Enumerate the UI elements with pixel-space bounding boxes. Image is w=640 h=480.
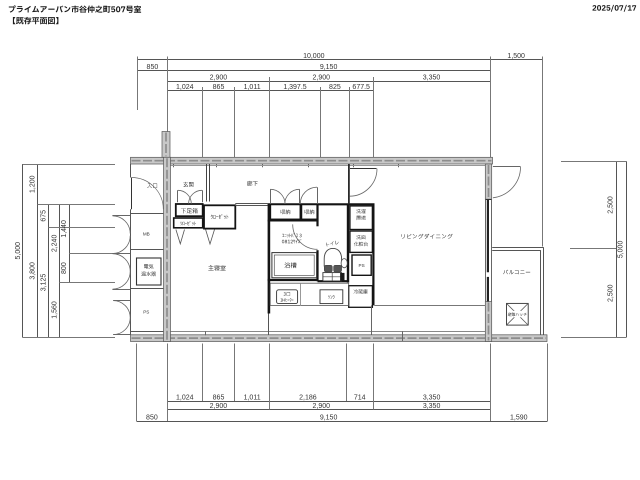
svg-text:9,150: 9,150 bbox=[320, 415, 338, 422]
svg-text:9,150: 9,150 bbox=[320, 64, 338, 71]
svg-text:3,800: 3,800 bbox=[30, 262, 37, 280]
svg-text:2,500: 2,500 bbox=[608, 284, 615, 302]
svg-text:1,500: 1,500 bbox=[507, 53, 525, 60]
svg-text:1,590: 1,590 bbox=[510, 415, 528, 422]
svg-text:PS: PS bbox=[143, 309, 149, 314]
svg-text:675: 675 bbox=[41, 210, 48, 222]
svg-text:1,397.5: 1,397.5 bbox=[283, 84, 306, 91]
svg-text:1,011: 1,011 bbox=[244, 395, 261, 402]
svg-text:1,011: 1,011 bbox=[244, 84, 261, 91]
svg-text:MB: MB bbox=[143, 232, 150, 237]
svg-text:714: 714 bbox=[354, 395, 366, 402]
svg-text:3,350: 3,350 bbox=[423, 74, 441, 81]
svg-text:2,900: 2,900 bbox=[313, 74, 331, 81]
svg-text:1,560: 1,560 bbox=[51, 301, 58, 319]
svg-text:3,350: 3,350 bbox=[423, 403, 441, 410]
svg-text:677.5: 677.5 bbox=[352, 84, 370, 91]
svg-text:5,000: 5,000 bbox=[15, 242, 22, 260]
svg-text:2,240: 2,240 bbox=[51, 235, 58, 253]
svg-text:PS: PS bbox=[359, 263, 365, 268]
svg-text:2,900: 2,900 bbox=[210, 403, 228, 410]
svg-text:5,000: 5,000 bbox=[618, 241, 625, 259]
svg-text:825: 825 bbox=[329, 84, 341, 91]
svg-text:3,125: 3,125 bbox=[41, 274, 48, 292]
svg-text:850: 850 bbox=[146, 415, 158, 422]
svg-text:10,000: 10,000 bbox=[303, 53, 325, 60]
svg-text:1,024: 1,024 bbox=[176, 84, 194, 91]
svg-text:2,900: 2,900 bbox=[313, 403, 331, 410]
svg-text:865: 865 bbox=[213, 84, 225, 91]
svg-text:850: 850 bbox=[147, 64, 159, 71]
svg-text:1,440: 1,440 bbox=[61, 220, 68, 238]
svg-text:865: 865 bbox=[213, 395, 225, 402]
svg-text:2,500: 2,500 bbox=[608, 196, 615, 214]
svg-text:800: 800 bbox=[61, 262, 68, 274]
svg-text:2,186: 2,186 bbox=[299, 395, 317, 402]
svg-text:1,200: 1,200 bbox=[30, 175, 37, 193]
svg-text:1,024: 1,024 bbox=[176, 395, 194, 402]
svg-text:2,900: 2,900 bbox=[210, 74, 228, 81]
svg-text:3,350: 3,350 bbox=[423, 395, 441, 402]
